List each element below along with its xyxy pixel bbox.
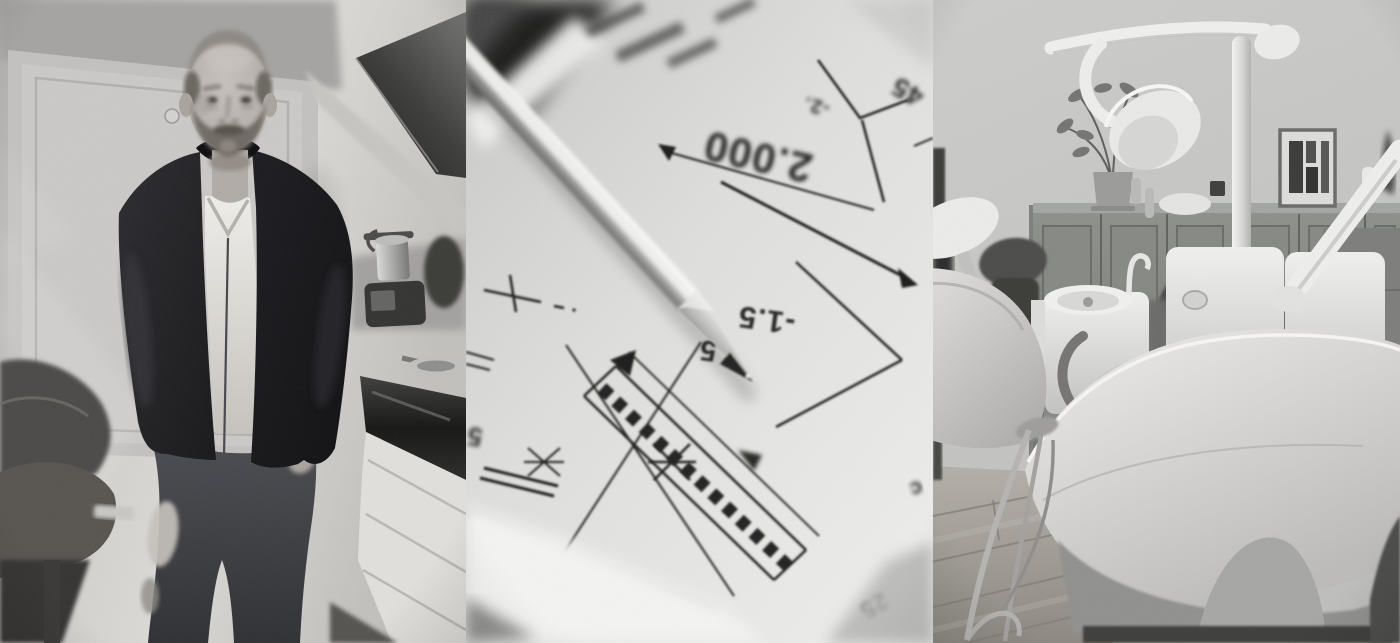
film-grain-overlay xyxy=(933,0,1400,643)
kitchen-portrait-photo xyxy=(0,0,466,643)
photo-collage: 2.000 -2. 45 -1.5 5 5 25 c xyxy=(0,0,1400,643)
blueprint-photo: 2.000 -2. 45 -1.5 5 5 25 c xyxy=(466,0,933,643)
panel-kitchen-portrait xyxy=(0,0,466,643)
panel-blueprint-pencil: 2.000 -2. 45 -1.5 5 5 25 c xyxy=(466,0,933,643)
dental-office-photo xyxy=(933,0,1400,643)
panel-dental-office xyxy=(933,0,1400,643)
film-grain-overlay xyxy=(0,0,466,643)
film-grain-overlay xyxy=(466,0,933,643)
